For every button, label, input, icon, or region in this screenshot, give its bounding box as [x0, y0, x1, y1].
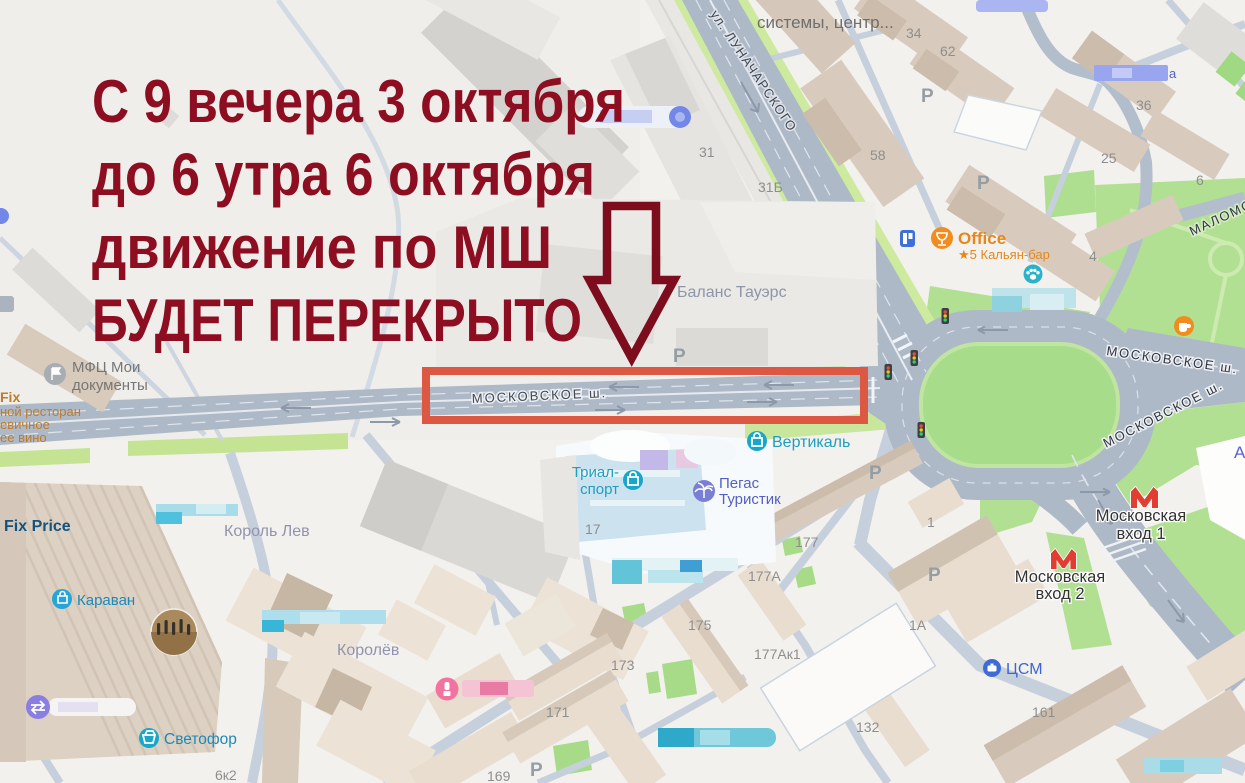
svg-text:Королёв: Королёв — [337, 642, 399, 659]
svg-text:177А: 177А — [748, 568, 781, 584]
svg-text:до 6 утра 6 октября: до 6 утра 6 октября — [92, 141, 595, 208]
svg-text:спорт: спорт — [580, 481, 619, 498]
svg-text:Р: Р — [977, 173, 990, 194]
svg-text:34: 34 — [906, 25, 922, 41]
svg-text:вход 1: вход 1 — [1116, 525, 1165, 543]
svg-text:Fix Price: Fix Price — [4, 518, 71, 535]
svg-text:Р: Р — [530, 760, 543, 781]
svg-text:177Ак1: 177Ак1 — [754, 646, 801, 662]
svg-text:Туристик: Туристик — [719, 491, 781, 508]
svg-text:1А: 1А — [909, 617, 927, 633]
svg-text:Московская: Московская — [1096, 507, 1186, 525]
svg-text:Триал-: Триал- — [572, 464, 619, 481]
svg-text:169: 169 — [487, 768, 511, 783]
svg-text:Office: Office — [958, 229, 1006, 248]
svg-text:177: 177 — [795, 534, 819, 550]
svg-text:173: 173 — [611, 657, 635, 673]
svg-text:62: 62 — [940, 43, 956, 59]
svg-text:Пегас: Пегас — [719, 475, 760, 492]
svg-text:А: А — [1234, 443, 1245, 462]
svg-text:а: а — [1169, 66, 1177, 81]
svg-text:МФЦ Мои: МФЦ Мои — [72, 359, 140, 376]
svg-text:175: 175 — [688, 617, 712, 633]
svg-text:БУДЕТ ПЕРЕКРЫТО: БУДЕТ ПЕРЕКРЫТО — [92, 287, 582, 354]
svg-text:ЦСМ: ЦСМ — [1006, 661, 1043, 678]
svg-text:Fix: Fix — [0, 389, 20, 405]
svg-text:6к2: 6к2 — [215, 767, 237, 783]
svg-text:4: 4 — [1089, 248, 1097, 264]
svg-text:31: 31 — [699, 144, 715, 160]
svg-text:132: 132 — [856, 719, 880, 735]
svg-text:171: 171 — [546, 704, 570, 720]
svg-text:системы, центр...: системы, центр... — [757, 13, 894, 32]
svg-text:31Б: 31Б — [758, 179, 783, 195]
svg-text:Светофор: Светофор — [164, 731, 237, 748]
svg-text:Р: Р — [928, 565, 941, 586]
svg-text:★5 Кальян-бар: ★5 Кальян-бар — [958, 247, 1050, 262]
svg-text:25: 25 — [1101, 150, 1117, 166]
svg-text:ее вино: ее вино — [0, 430, 47, 445]
svg-text:документы: документы — [72, 377, 148, 394]
svg-text:движение по МШ: движение по МШ — [92, 214, 552, 281]
svg-text:Король Лев: Король Лев — [224, 523, 310, 540]
svg-text:вход 2: вход 2 — [1035, 585, 1084, 603]
svg-text:58: 58 — [870, 147, 886, 163]
svg-text:17: 17 — [585, 521, 601, 537]
svg-text:Караван: Караван — [77, 592, 135, 609]
svg-text:6: 6 — [1196, 172, 1204, 188]
svg-text:Вертикаль: Вертикаль — [772, 434, 850, 451]
svg-text:Московская: Московская — [1015, 568, 1105, 586]
svg-text:Р: Р — [869, 463, 882, 484]
svg-text:Р: Р — [921, 86, 934, 107]
svg-text:С 9 вечера 3 октября: С 9 вечера 3 октября — [92, 68, 625, 135]
svg-text:36: 36 — [1136, 97, 1152, 113]
svg-text:Р: Р — [673, 346, 686, 367]
svg-text:1: 1 — [927, 514, 935, 530]
svg-text:Баланс Тауэрс: Баланс Тауэрс — [677, 284, 787, 301]
svg-text:161: 161 — [1032, 704, 1056, 720]
